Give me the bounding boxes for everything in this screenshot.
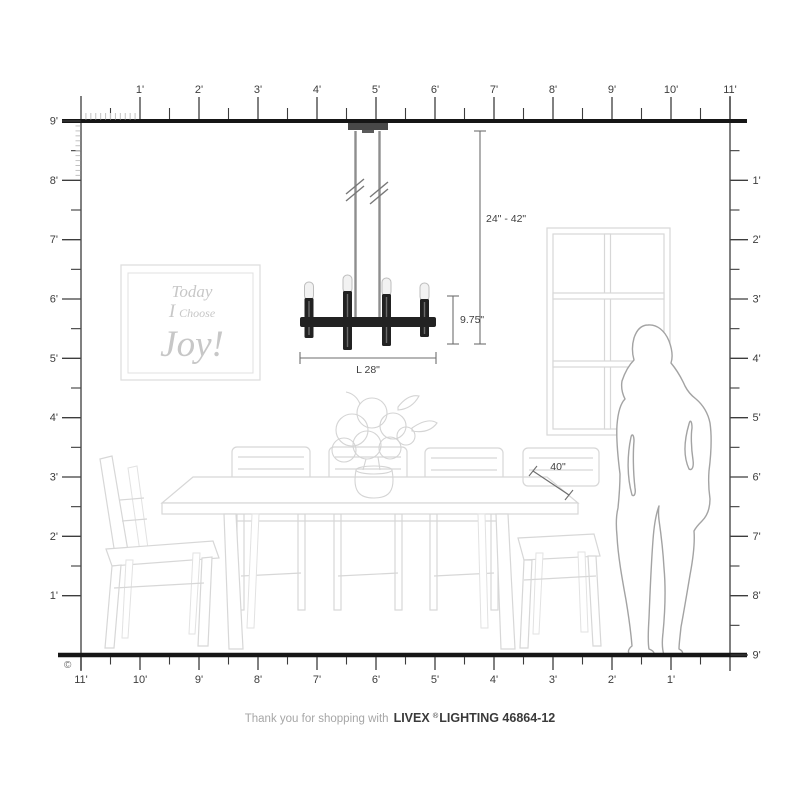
- rod-break-marks: [346, 179, 388, 204]
- dim-fixture-height: 9.75": [447, 296, 484, 344]
- bulb: [382, 278, 391, 296]
- chair-front-leg: [520, 560, 532, 648]
- ruler-label: 4': [313, 84, 321, 96]
- wall-art-line2-word2: Choose: [179, 306, 216, 320]
- bulb: [420, 283, 429, 301]
- ruler-label: 7': [50, 234, 58, 246]
- bulbs: [305, 275, 430, 301]
- ruler-label: 1': [753, 175, 761, 187]
- copyright-symbol: ©: [64, 660, 72, 671]
- ruler-right: 1'2'3'4'5'6'7'8'9': [731, 151, 761, 662]
- bulb: [343, 275, 352, 293]
- ruler-label: 11': [723, 84, 737, 96]
- sprig: [346, 392, 360, 404]
- bulb: [305, 282, 314, 300]
- ruler-label: 2': [50, 531, 58, 543]
- ruler-label: 3': [254, 84, 262, 96]
- ruler-label: 5': [431, 674, 439, 686]
- table-leg-right: [496, 514, 515, 649]
- ruler-left: 9'8'7'6'5'4'3'2'1': [50, 116, 81, 603]
- chair-back: [329, 447, 407, 610]
- chair-back: [232, 447, 310, 610]
- dimension-scene: Today IChoose Joy!: [0, 0, 800, 800]
- ruler-label: 11': [74, 674, 88, 686]
- window-mullion-vertical: [605, 234, 611, 429]
- ruler-label: 6': [372, 674, 380, 686]
- ruler-label: 3': [50, 472, 58, 484]
- ruler-label: 6': [431, 84, 439, 96]
- wall-art-line3: Joy!: [160, 324, 224, 365]
- chandelier: [300, 123, 436, 350]
- footer-prefix: Thank you for shopping with: [245, 713, 389, 725]
- window-mullion-horizontal: [553, 293, 664, 299]
- table-rear-leg: [478, 514, 488, 628]
- dining-chairs-back-row: [232, 447, 503, 610]
- ruler-label: 9': [608, 84, 616, 96]
- chair-front-leg: [198, 557, 212, 646]
- ruler-label: 9': [753, 650, 761, 662]
- fixture-length-label: L 28": [356, 364, 380, 376]
- ruler-label: 5': [372, 84, 380, 96]
- canopy-stem: [362, 130, 374, 133]
- footer-caption: Thank you for shopping withLIVEX®LIGHTIN…: [245, 711, 556, 725]
- registered-mark: ®: [433, 711, 439, 720]
- chair-back: [425, 448, 503, 610]
- ruler-label: 8': [753, 590, 761, 602]
- hanging-range-label: 24" - 42": [486, 213, 526, 225]
- ruler-label: 9': [195, 674, 203, 686]
- dim-hanging-range: 24" - 42": [474, 131, 526, 344]
- ruler-top: 1'2'3'4'5'6'7'8'9'10'11': [86, 84, 737, 120]
- ruler-label: 10': [133, 674, 147, 686]
- ruler-label: 8': [50, 175, 58, 187]
- chair-rear-leg: [588, 556, 601, 646]
- wall-art-line1: Today: [172, 282, 213, 301]
- wall-art: Today IChoose Joy!: [121, 265, 260, 380]
- ruler-label: 2': [753, 234, 761, 246]
- ruler-label: 7': [313, 674, 321, 686]
- leaf: [412, 421, 437, 432]
- ruler-label: 6': [753, 472, 761, 484]
- dim-fixture-length: L 28": [300, 352, 436, 376]
- chair-rear-leg: [105, 565, 121, 648]
- ruler-label: 1': [50, 590, 58, 602]
- leaf: [398, 396, 419, 410]
- dining-table: [162, 477, 578, 649]
- ruler-label: 4': [50, 412, 58, 424]
- chair-back-post: [100, 456, 129, 561]
- ruler-label: 2': [195, 84, 203, 96]
- ruler-label: 1': [667, 674, 675, 686]
- footer-brand: LIVEX: [394, 711, 431, 725]
- ceiling-canopy: [348, 123, 388, 130]
- ruler-label: 6': [50, 294, 58, 306]
- ruler-label: 5': [50, 353, 58, 365]
- ruler-label: 4': [490, 674, 498, 686]
- ruler-label: 7': [753, 531, 761, 543]
- fixture-height-label: 9.75": [460, 314, 484, 326]
- ruler-label: 5': [753, 412, 761, 424]
- product-dimension-diagram: Today IChoose Joy!: [0, 0, 800, 800]
- dimension-annotations: 24" - 42" 9.75" L 28" 40": [300, 131, 573, 500]
- ruler-label: 3': [753, 294, 761, 306]
- table-rear-leg: [247, 514, 259, 628]
- fixture-bar: [300, 317, 436, 327]
- ruler-bottom: 11'10'9'8'7'6'5'4'3'2'1': [74, 657, 700, 686]
- chair-back-post-far: [128, 466, 149, 559]
- ruler-label: 8': [254, 674, 262, 686]
- table-edge-band: [162, 503, 578, 514]
- table-top: [162, 477, 578, 503]
- ruler-label: 9': [50, 116, 58, 128]
- vase-rim: [356, 466, 392, 474]
- ruler-label: 3': [549, 674, 557, 686]
- ruler-label: 7': [490, 84, 498, 96]
- ruler-label: 10': [664, 84, 678, 96]
- footer-suffix: LIGHTING 46864-12: [439, 711, 555, 725]
- ruler-label: 2': [608, 674, 616, 686]
- ruler-label: 4': [753, 353, 761, 365]
- woman-silhouette: [616, 325, 711, 655]
- ruler-label: 8': [549, 84, 557, 96]
- ruler-label: 1': [136, 84, 144, 96]
- table-depth-label: 40": [550, 461, 566, 473]
